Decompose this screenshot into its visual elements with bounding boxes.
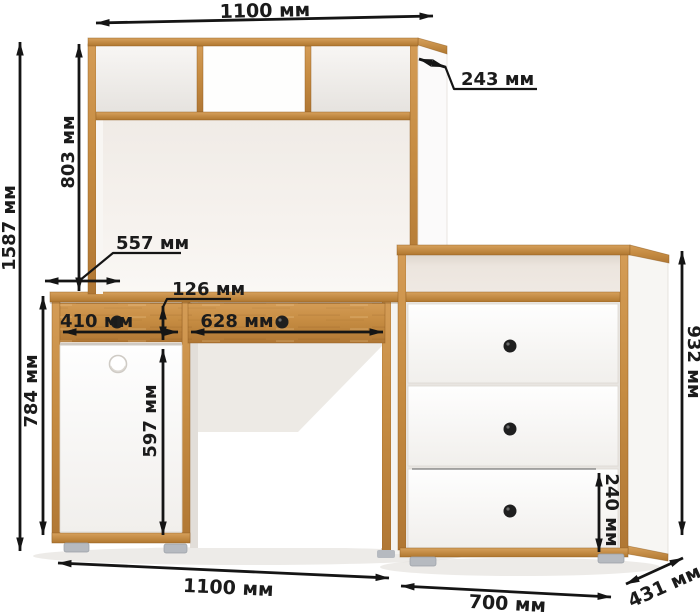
dim-top-width-label: 1100 мм <box>219 0 310 23</box>
dim-bottom-drawer-label: 240 мм <box>601 473 622 546</box>
dim-bottom-width-line <box>58 563 389 578</box>
dim-door-height-label: 597 мм <box>140 384 161 457</box>
furniture-dimension-diagram: 1100 мм 243 мм 1587 мм 803 мм 557 мм 784… <box>0 0 700 614</box>
hutch-compartment-left <box>96 46 197 112</box>
dim-desk-depth-label: 557 мм <box>116 233 189 254</box>
diagram-canvas: 1100 мм 243 мм 1587 мм 803 мм 557 мм 784… <box>0 0 700 614</box>
hutch-left-upright <box>88 44 96 294</box>
door-handle <box>110 356 127 373</box>
hutch-divider-2 <box>305 46 311 112</box>
hutch-compartment-middle <box>203 46 305 112</box>
pedestal-left-edge <box>52 300 60 542</box>
drawer-628-knob-highlight <box>278 318 281 321</box>
chest-right-side-panel <box>628 248 668 556</box>
chest-left-edge <box>398 253 406 550</box>
dim-drawer-height-label: 126 мм <box>172 279 245 300</box>
dim-bottom-width-label: 1100 мм <box>183 575 274 601</box>
pedestal-bottom-band <box>52 533 190 543</box>
desk-left-foot <box>64 543 89 552</box>
chest-knob-3-highlight <box>506 507 509 510</box>
pedestal-door-top-gap <box>60 343 182 346</box>
chest-of-drawers <box>397 245 669 566</box>
hutch-back-wall <box>100 118 416 294</box>
dim-chest-height-label: 932 мм <box>683 325 700 398</box>
chest-knob-2 <box>504 423 517 436</box>
chest-knob-3 <box>504 505 517 518</box>
dim-hutch-height-label: 803 мм <box>58 115 79 188</box>
chest-knob-2-highlight <box>506 425 509 428</box>
dim-left-drawer-label: 410 мм <box>60 311 133 332</box>
chest-left-foot <box>410 557 436 566</box>
hutch-right-side-panel <box>418 44 447 256</box>
chest-open-shelf <box>406 255 620 292</box>
chest-plinth <box>400 548 628 557</box>
drawer-628-knob <box>276 316 289 329</box>
dim-hutch-depth-label: 243 мм <box>461 69 534 90</box>
dim-total-height-label: 1587 мм <box>0 185 20 271</box>
chest-knob-1 <box>504 340 517 353</box>
chest-shelf-band <box>406 292 620 302</box>
desktop-shadow <box>50 302 453 304</box>
hutch-top-band <box>88 38 418 46</box>
chest-top-slab <box>397 245 630 255</box>
chest-right-foot <box>598 554 624 563</box>
desk-right-leg-foot <box>377 550 395 558</box>
dim-right-drawer-label: 628 мм <box>200 311 273 332</box>
hutch-compartment-right <box>311 46 410 112</box>
hutch-left-upright-side <box>96 120 103 294</box>
chest-knob-1-highlight <box>506 342 509 345</box>
hutch-divider-1 <box>197 46 203 112</box>
desk-mid-foot <box>164 544 187 553</box>
dim-desk-height-label: 784 мм <box>21 354 42 427</box>
furniture-drawing <box>33 38 669 576</box>
dim-chest-width-label: 700 мм <box>468 591 546 614</box>
desktop <box>50 292 453 302</box>
hutch-shelf-band <box>96 112 410 120</box>
